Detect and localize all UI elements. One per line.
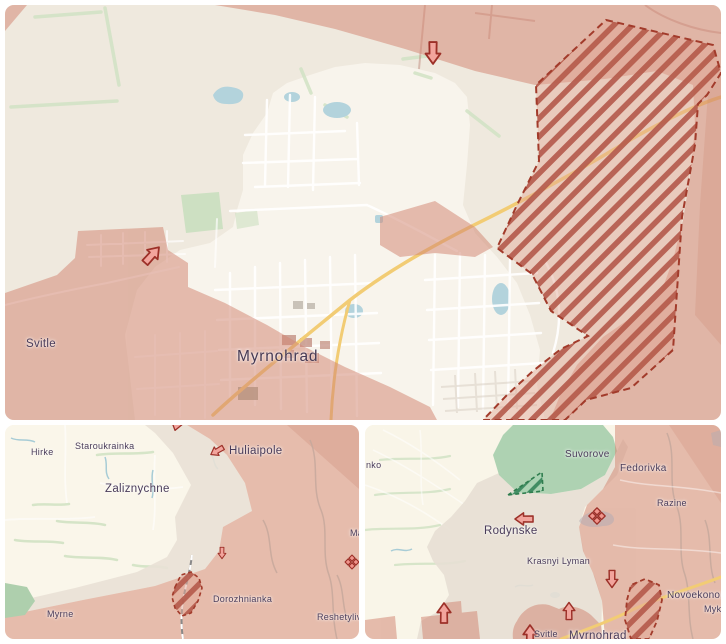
place-label-staroukrainka: Staroukrainka bbox=[75, 441, 134, 451]
place-label-huliaipole: Huliaipole bbox=[229, 445, 283, 457]
place-label-reshetylivske: Reshetylivske bbox=[317, 612, 359, 622]
place-label-zaliznychne: Zaliznychne bbox=[105, 483, 170, 495]
place-label-krasnyi-lyman: Krasnyi Lyman bbox=[527, 556, 590, 566]
place-label-myrne: Myrne bbox=[47, 609, 74, 619]
map-canvas-huliaipole bbox=[5, 425, 359, 639]
map-screenshot-montage: Svitle Myrnohrad bbox=[0, 0, 726, 644]
place-label-rodynske: Rodynske bbox=[484, 525, 538, 537]
map-canvas-myrnohrad bbox=[5, 5, 721, 420]
place-label-nko-cut: nko bbox=[366, 460, 381, 470]
place-label-myrnohrad: Myrnohrad bbox=[569, 630, 627, 639]
place-label-svitle: Svitle bbox=[534, 629, 558, 639]
place-label-svitle: Svitle bbox=[26, 338, 56, 350]
place-label-myrnohrad: Myrnohrad bbox=[237, 348, 318, 366]
map-panel-huliaipole[interactable]: Hirke Staroukrainka Zaliznychne Huliaipo… bbox=[5, 425, 359, 639]
map-panel-rodynske[interactable]: nko Suvorove Fedorivka Razine Rodynske K… bbox=[365, 425, 721, 639]
map-canvas-rodynske bbox=[365, 425, 721, 639]
place-label-dorozhnianka: Dorozhnianka bbox=[213, 594, 272, 604]
place-label-suvorove: Suvorove bbox=[565, 449, 610, 460]
place-label-mala-cut: Ma bbox=[350, 528, 359, 538]
place-label-fedorivka: Fedorivka bbox=[620, 463, 667, 474]
place-label-hirke: Hirke bbox=[31, 447, 54, 457]
map-panel-myrnohrad[interactable]: Svitle Myrnohrad bbox=[5, 5, 721, 420]
place-label-mykolaivka-cut: Mykola bbox=[704, 604, 721, 614]
place-label-razine: Razine bbox=[657, 498, 687, 508]
place-label-novoekonomichne-cut: Novoekonomich bbox=[667, 590, 721, 601]
